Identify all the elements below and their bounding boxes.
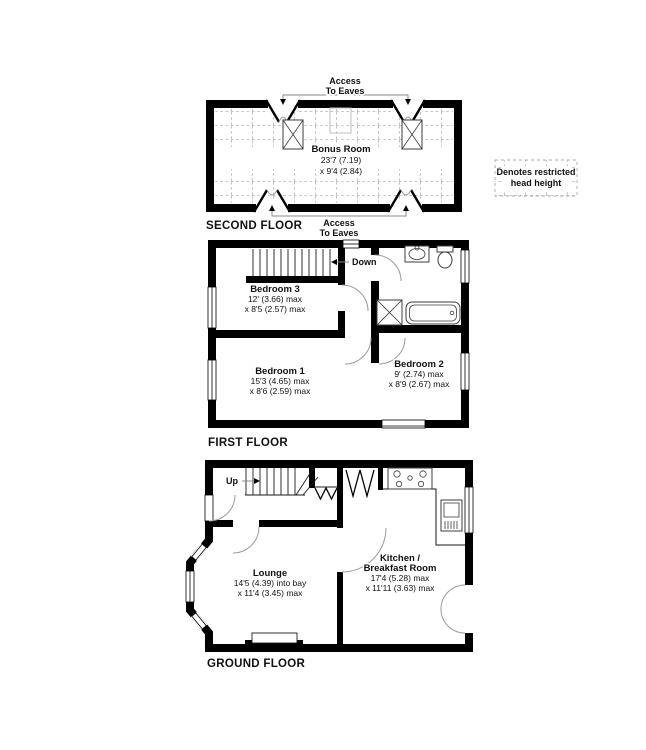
access-label: Access [329, 76, 361, 86]
window [461, 250, 469, 283]
room-dim-2: x 11'11 (3.63) max [366, 583, 436, 593]
room-dim-2: x 8'9 (2.67) max [389, 379, 450, 389]
bedroom2-label: Bedroom 2 9' (2.74) max x 8'9 (2.67) max [389, 359, 450, 389]
room-dim-1: 14'5 (4.39) into bay [234, 578, 307, 588]
room-dim-1: 9' (2.74) max [394, 369, 444, 379]
hearth [252, 633, 297, 643]
bedroom1-label: Bedroom 1 15'3 (4.65) max x 8'6 (2.59) m… [250, 366, 311, 396]
room-dim-1: 23'7 (7.19) [321, 155, 362, 165]
room-dim-2: x 9'4 (2.84) [320, 166, 362, 176]
ground-floor-label: GROUND FLOOR [207, 658, 306, 670]
front-door-opening [205, 495, 213, 521]
kitchen-wall-stub [378, 466, 383, 490]
floorplan-canvas: Access To Eaves Access To Eaves Bonus Ro… [0, 0, 646, 745]
down-label: Down [352, 257, 377, 267]
kitchen-sink-icon [441, 500, 462, 531]
up-label: Up [226, 476, 238, 486]
window [208, 287, 216, 328]
lounge-kitchen-divider-upper [337, 466, 343, 528]
skylight-icon [283, 120, 303, 149]
floorplan-page: Access To Eaves Access To Eaves Bonus Ro… [0, 0, 646, 745]
first-floor-plan: Down [208, 240, 469, 449]
room-dim-2: x 11'4 (3.45) max [238, 588, 304, 598]
room-dim-1: 12' (3.66) max [248, 294, 303, 304]
sink-icon [405, 246, 429, 262]
ground-floor-outer-walls [190, 464, 469, 648]
lounge-kitchen-divider-lower [337, 572, 343, 648]
bedroom2-wall-stub [371, 333, 379, 363]
legend-line-2: head height [511, 178, 562, 188]
window [343, 240, 359, 248]
legend-restricted-head-height: Denotes restricted head height [495, 160, 577, 196]
bedroom3-label: Bedroom 3 12' (3.66) max x 8'5 (2.57) ma… [245, 284, 306, 314]
access-label: Access [323, 218, 355, 228]
room-name: Bonus Room [311, 144, 370, 155]
ground-floor-plan: Up [186, 464, 473, 670]
legend-line-1: Denotes restricted [496, 167, 575, 177]
hob-icon [388, 468, 432, 489]
first-floor-label: FIRST FLOOR [208, 437, 288, 449]
bathroom-bottom-wall [371, 325, 465, 333]
room-dim-1: 15'3 (4.65) max [251, 376, 311, 386]
shower-icon [377, 300, 402, 325]
toilet-icon [437, 246, 453, 268]
window [208, 360, 216, 400]
room-dim-1: 17'4 (5.28) max [371, 573, 431, 583]
second-floor-label: SECOND FLOOR [206, 220, 303, 232]
skylight-icon [402, 120, 422, 149]
window-recess [382, 420, 425, 428]
hall-lounge-wall-right [259, 520, 343, 527]
window [465, 487, 473, 533]
to-eaves-label: To Eaves [320, 228, 359, 238]
window [461, 353, 469, 390]
bathtub-icon [406, 302, 460, 324]
room-dim-2: x 8'6 (2.59) max [250, 386, 311, 396]
room-dim-2: x 8'5 (2.57) max [245, 304, 306, 314]
wall-below-stairs [246, 276, 345, 283]
second-floor-plan: Access To Eaves Access To Eaves Bonus Ro… [206, 76, 458, 238]
stair-side-wall [338, 248, 345, 285]
bathroom-wall-upper [371, 244, 379, 255]
to-eaves-label: To Eaves [326, 86, 365, 96]
bedroom-divider-wall [212, 330, 345, 338]
